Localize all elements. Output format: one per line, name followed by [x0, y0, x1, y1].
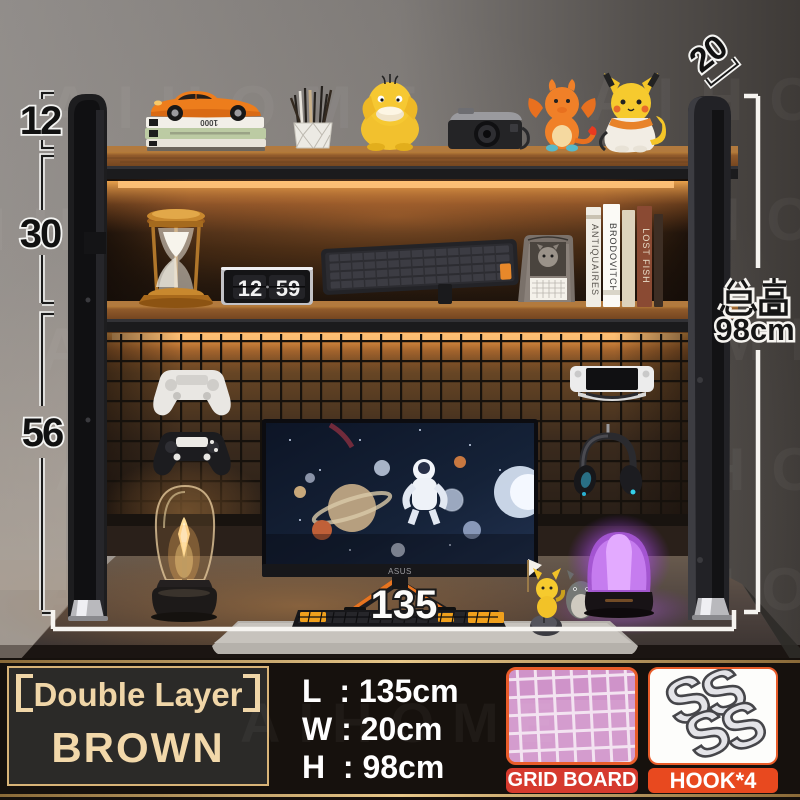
svg-text:ASUS: ASUS	[388, 567, 412, 576]
svg-text:98cm: 98cm	[715, 312, 794, 347]
svg-text:BRODOVITCH: BRODOVITCH	[608, 223, 618, 293]
svg-text:56: 56	[22, 411, 63, 455]
svg-text:LOST FISH: LOST FISH	[641, 228, 651, 283]
svg-text:59: 59	[276, 276, 300, 301]
svg-text:12: 12	[20, 99, 61, 143]
svg-text:30: 30	[20, 212, 61, 256]
svg-text:1000: 1000	[200, 118, 218, 127]
svg-text:135: 135	[371, 583, 438, 627]
svg-text:12: 12	[238, 276, 262, 301]
svg-text:ANTIQUAIRES: ANTIQUAIRES	[590, 224, 600, 296]
